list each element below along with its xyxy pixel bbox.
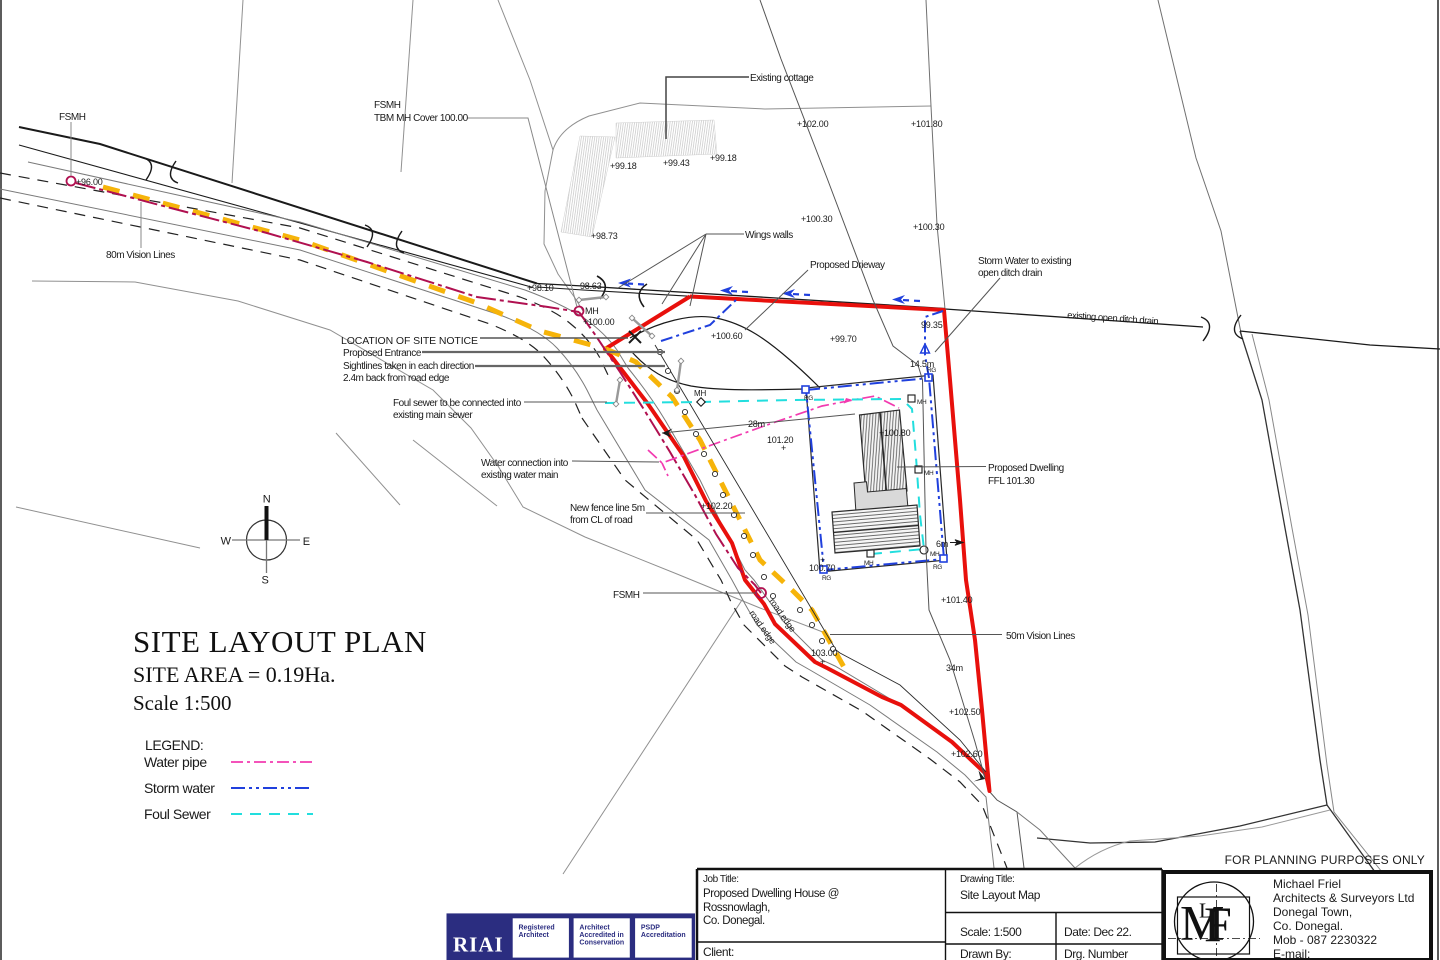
svg-text:Architect: Architect	[579, 925, 610, 932]
svg-text:Architects & Surveyors Ltd: Architects & Surveyors Ltd	[1273, 891, 1414, 905]
svg-text:RIAI: RIAI	[453, 933, 504, 957]
svg-text:open ditch drain: open ditch drain	[978, 268, 1042, 279]
svg-text:Drawing Title:: Drawing Title:	[960, 874, 1014, 885]
svg-text:+102.60: +102.60	[951, 749, 983, 759]
svg-text:Donegal Town,: Donegal Town,	[1273, 905, 1352, 919]
svg-text:50m Vision Lines: 50m Vision Lines	[1006, 631, 1075, 642]
svg-text:Conservation: Conservation	[579, 940, 624, 947]
svg-text:L: L	[1199, 899, 1212, 923]
svg-text:Co. Donegal.: Co. Donegal.	[1273, 919, 1343, 933]
svg-text:+101.40: +101.40	[941, 595, 973, 605]
svg-text:MH: MH	[585, 306, 599, 316]
svg-text:Wings walls: Wings walls	[745, 230, 793, 241]
svg-text:+100.30: +100.30	[913, 222, 945, 232]
svg-text:2.4m back from road edge: 2.4m back from road edge	[343, 373, 450, 384]
svg-text:Co. Donegal.: Co. Donegal.	[703, 915, 765, 927]
svg-text:Rossnowlagh,: Rossnowlagh,	[703, 902, 770, 914]
svg-text:Water pipe: Water pipe	[144, 754, 207, 770]
svg-text:98.63: 98.63	[580, 281, 602, 291]
svg-text:FSMH: FSMH	[374, 100, 401, 111]
svg-text:LEGEND:: LEGEND:	[145, 737, 203, 753]
svg-text:existing main sewer: existing main sewer	[393, 410, 473, 421]
svg-text:28m: 28m	[748, 419, 765, 429]
svg-text:Date: Dec 22.: Date: Dec 22.	[1064, 925, 1132, 939]
svg-text:Foul sewer to be connected int: Foul sewer to be connected into	[393, 398, 522, 409]
svg-text:34m: 34m	[946, 663, 963, 673]
svg-text:Site Layout Map: Site Layout Map	[960, 888, 1041, 902]
svg-text:80m Vision Lines: 80m Vision Lines	[106, 250, 175, 261]
svg-text:Proposed Drieway: Proposed Drieway	[810, 260, 885, 271]
svg-text:New fence line 5m: New fence line 5m	[570, 503, 645, 514]
svg-text:+: +	[781, 443, 786, 453]
svg-text:RG: RG	[933, 564, 942, 571]
svg-text:+99.43: +99.43	[663, 158, 690, 168]
svg-text:PSDP: PSDP	[641, 925, 660, 932]
svg-text:+102.50: +102.50	[949, 707, 981, 717]
svg-text:99.35: 99.35	[921, 320, 943, 330]
svg-text:FOR PLANNING PURPOSES ONLY: FOR PLANNING PURPOSES ONLY	[1225, 853, 1425, 867]
svg-text:S: S	[262, 575, 269, 587]
svg-text:Proposed Entrance: Proposed Entrance	[343, 348, 422, 359]
svg-text:+99.18: +99.18	[610, 161, 637, 171]
svg-text:Scale 1:500: Scale 1:500	[133, 691, 232, 715]
svg-text:Drg. Number: Drg. Number	[1064, 947, 1128, 960]
svg-text:Mob - 087 2230322: Mob - 087 2230322	[1273, 933, 1377, 947]
svg-text:+: +	[820, 657, 825, 667]
svg-text:TBM MH Cover 100.00: TBM MH Cover 100.00	[374, 113, 469, 124]
svg-text:RG: RG	[822, 575, 831, 582]
svg-text:MH: MH	[930, 551, 940, 558]
svg-text:W: W	[221, 536, 232, 548]
svg-text:+99.18: +99.18	[710, 153, 737, 163]
svg-text:+100.60: +100.60	[711, 331, 743, 341]
svg-text:FFL 101.30: FFL 101.30	[988, 476, 1035, 487]
svg-text:Storm water: Storm water	[144, 780, 215, 796]
svg-text:Michael Friel: Michael Friel	[1273, 877, 1341, 891]
svg-text:existing water main: existing water main	[481, 470, 558, 481]
svg-text:from CL of road: from CL of road	[570, 515, 632, 526]
svg-text:Job Title:: Job Title:	[703, 874, 739, 885]
svg-text:FSMH: FSMH	[613, 590, 640, 601]
svg-text:LOCATION OF SITE NOTICE: LOCATION OF SITE NOTICE	[341, 335, 478, 347]
svg-text:Accredited in: Accredited in	[579, 932, 623, 939]
svg-text:Proposed Dwelling House @: Proposed Dwelling House @	[703, 888, 839, 900]
svg-text:+96.00: +96.00	[76, 177, 103, 187]
svg-text:6m: 6m	[936, 539, 948, 549]
svg-text:+102.20: +102.20	[701, 501, 733, 511]
svg-text:+98.10: +98.10	[527, 283, 554, 293]
svg-text:+101.80: +101.80	[911, 119, 943, 129]
svg-text:+100.30: +100.30	[801, 214, 833, 224]
svg-text:Foul Sewer: Foul Sewer	[144, 806, 211, 822]
svg-text:+: +	[820, 555, 825, 565]
svg-text:Accreditation: Accreditation	[641, 932, 686, 939]
svg-text:SITE LAYOUT PLAN: SITE LAYOUT PLAN	[133, 624, 427, 659]
svg-text:+98.73: +98.73	[591, 231, 618, 241]
svg-text:SITE AREA = 0.19Ha.: SITE AREA = 0.19Ha.	[133, 662, 335, 687]
svg-text:E: E	[303, 536, 310, 548]
svg-text:MH: MH	[917, 399, 927, 406]
svg-text:RG: RG	[927, 367, 936, 374]
svg-text:+99.70: +99.70	[830, 334, 857, 344]
svg-text:Sightlines taken in each direc: Sightlines taken in each direction	[343, 361, 474, 372]
svg-text:Water connection into: Water connection into	[481, 458, 569, 469]
svg-text:N: N	[263, 494, 271, 506]
svg-text:E-mail:: E-mail:	[1273, 947, 1310, 960]
svg-text:+102.00: +102.00	[797, 119, 829, 129]
svg-text:Drawn By:: Drawn By:	[960, 947, 1011, 960]
svg-text:Existing cottage: Existing cottage	[750, 73, 814, 84]
svg-text:+100.00: +100.00	[583, 317, 615, 327]
svg-text:MH: MH	[924, 470, 934, 477]
svg-text:Proposed Dwelling: Proposed Dwelling	[988, 463, 1064, 474]
svg-text:RG: RG	[804, 395, 813, 402]
svg-text:Scale: 1:500: Scale: 1:500	[960, 925, 1022, 939]
svg-text:Client:: Client:	[703, 945, 734, 959]
svg-text:Architect: Architect	[519, 932, 550, 939]
svg-text:MH: MH	[694, 389, 706, 398]
svg-text:+100.80: +100.80	[879, 428, 911, 438]
svg-text:Storm Water to existing: Storm Water to existing	[978, 256, 1071, 267]
svg-text:FSMH: FSMH	[59, 112, 86, 123]
svg-text:Registered: Registered	[519, 925, 555, 932]
svg-text:MH: MH	[864, 560, 874, 567]
